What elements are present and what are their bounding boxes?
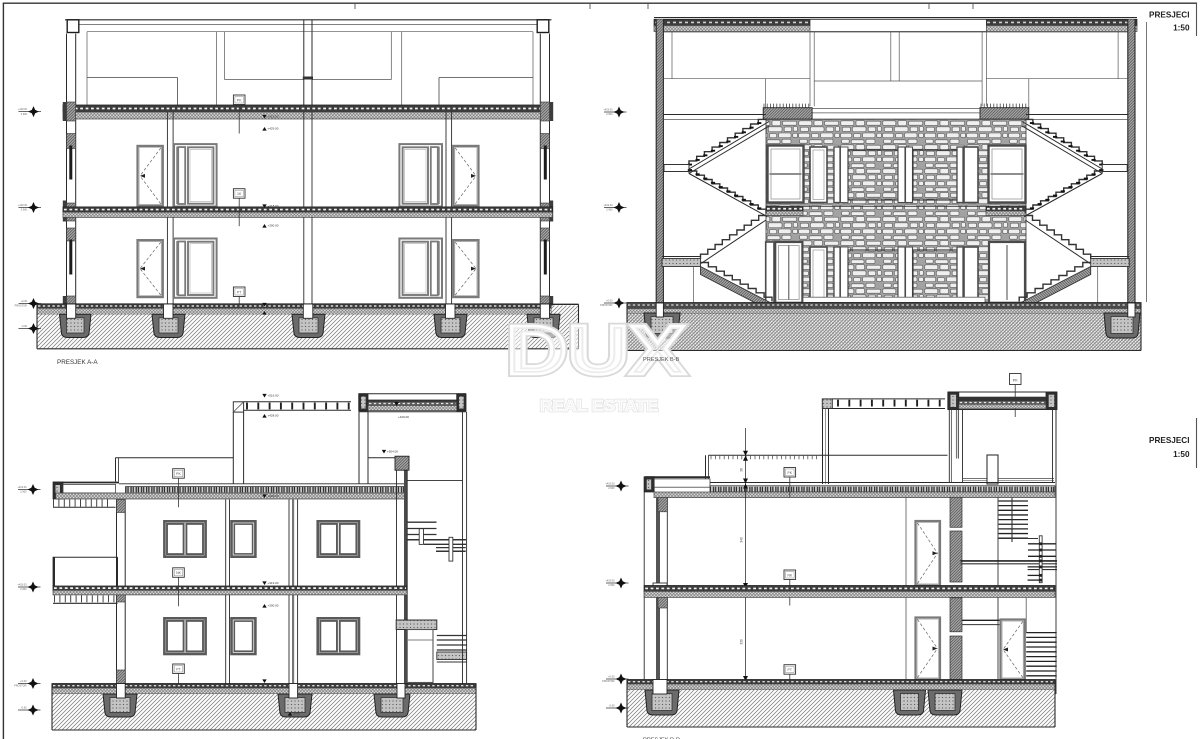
svg-text:+0.00: +0.00: [606, 300, 613, 303]
svg-text:-0.60: -0.60: [21, 707, 27, 710]
svg-text:PROSTOR: PROSTOR: [600, 304, 613, 307]
svg-text:PROSTOR: PROSTOR: [14, 685, 27, 688]
svg-text:+300.00: +300.00: [268, 224, 279, 228]
svg-text:2.900: 2.900: [21, 113, 28, 116]
svg-text:1K: 1K: [237, 192, 242, 196]
svg-text:+0.00: +0.00: [20, 680, 27, 683]
svg-text:+300.00: +300.00: [268, 604, 279, 608]
svg-text:-0.60: -0.60: [21, 325, 27, 328]
svg-text:2.900: 2.900: [606, 113, 613, 116]
svg-text:2.900: 2.900: [608, 487, 615, 490]
svg-text:+504.00: +504.00: [387, 450, 398, 454]
svg-text:PK: PK: [176, 472, 181, 476]
svg-text:1:50: 1:50: [1173, 450, 1190, 459]
svg-text:2.900: 2.900: [20, 588, 27, 591]
svg-text:2.900: 2.900: [21, 209, 28, 212]
svg-text:PROSTOR: PROSTOR: [15, 305, 28, 308]
svg-text:+318.00: +318.00: [268, 204, 279, 208]
svg-text:NK: NK: [787, 573, 793, 577]
svg-text:2.900: 2.900: [606, 209, 613, 212]
svg-text:340: 340: [740, 537, 744, 543]
svg-text:NK: NK: [176, 571, 182, 575]
svg-text:PRESJEK B-B: PRESJEK B-B: [643, 357, 680, 363]
svg-text:REAL ESTATE: REAL ESTATE: [540, 398, 658, 415]
svg-text:2.900: 2.900: [608, 584, 615, 587]
svg-text:330: 330: [740, 639, 744, 645]
svg-text:PK: PK: [237, 98, 242, 102]
svg-text:PRESJEK A-A: PRESJEK A-A: [57, 359, 98, 366]
svg-text:DUX: DUX: [506, 311, 686, 389]
svg-text:PK: PK: [787, 471, 792, 475]
svg-text:+516.00: +516.00: [268, 394, 279, 398]
svg-text:+319.00: +319.00: [268, 581, 279, 585]
svg-text:PRESJECI: PRESJECI: [1149, 11, 1190, 20]
svg-text:PROSTOR: PROSTOR: [602, 680, 615, 683]
svg-text:+429.00: +429.00: [268, 127, 279, 131]
svg-text:+419.00: +419.00: [17, 486, 27, 489]
svg-text:+419.00: +419.00: [605, 580, 615, 583]
svg-text:38: 38: [740, 468, 744, 472]
svg-text:+428.00: +428.00: [268, 414, 279, 418]
svg-text:+0.00: +0.00: [21, 300, 28, 303]
svg-text:+429.00: +429.00: [268, 494, 279, 498]
svg-text:-0.60: -0.60: [609, 705, 615, 708]
svg-text:+419.00: +419.00: [18, 204, 28, 207]
svg-text:+419.00: +419.00: [268, 115, 279, 119]
svg-text:+419.00: +419.00: [603, 204, 613, 207]
svg-text:+429.00: +429.00: [398, 415, 409, 419]
svg-text:-0.45: -0.45: [293, 712, 300, 716]
svg-text:+419.00: +419.00: [603, 109, 613, 112]
svg-text:1:50: 1:50: [1173, 24, 1190, 33]
svg-text:+0.00: +0.00: [608, 676, 615, 679]
svg-text:PK: PK: [1013, 379, 1018, 383]
svg-text:+419.00: +419.00: [17, 584, 27, 587]
svg-text:2.900: 2.900: [20, 491, 27, 494]
svg-text:+419.00: +419.00: [18, 108, 28, 111]
svg-text:PRESJECI: PRESJECI: [1149, 436, 1190, 445]
svg-text:+419.00: +419.00: [605, 483, 615, 486]
